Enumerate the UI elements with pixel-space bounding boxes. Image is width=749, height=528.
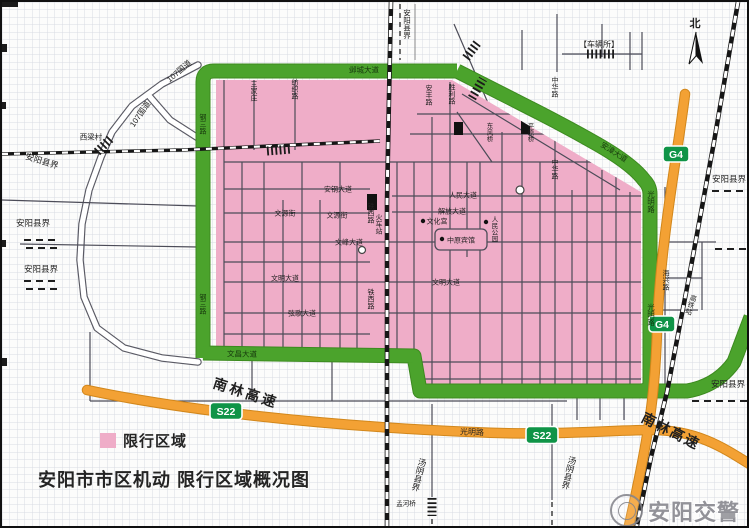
dongfeng-bridge-symbol bbox=[454, 122, 463, 135]
shengli-road-label: 胜利路 bbox=[449, 82, 456, 105]
g4-badge-top: G4 bbox=[663, 146, 689, 162]
zhonghua-road-1: 中华路 bbox=[552, 75, 559, 98]
zhonghua-road-2: 中华路 bbox=[552, 157, 559, 180]
legend-restricted-label: 限行区域 bbox=[123, 430, 187, 451]
police-badge-icon bbox=[610, 494, 643, 527]
anyang-boundary-e1: 安阳县界 bbox=[712, 174, 747, 184]
guangming-road-green-1: 光明路 bbox=[647, 189, 655, 214]
svg-text:G4: G4 bbox=[655, 319, 669, 331]
xiliang-village-label: 西梁村 bbox=[80, 132, 103, 142]
fangzhi-road-label: 纺织路 bbox=[292, 77, 299, 100]
traffic-police-watermark: 安阳交警 bbox=[610, 494, 740, 527]
xiange-avenue-label: 弦歌大道 bbox=[288, 308, 316, 317]
legend-restricted-swatch bbox=[100, 433, 116, 448]
jiefang-avenue-label: 解放大道 bbox=[438, 206, 466, 215]
legend: 限行区域 bbox=[100, 430, 187, 451]
tiexi-road-2: 铁西路 bbox=[368, 287, 375, 310]
s22-badge-right: S22 bbox=[526, 427, 558, 444]
map-title: 安阳市市区机动 限行区域概况图 bbox=[38, 466, 310, 492]
roundabout-center bbox=[359, 247, 366, 254]
roundabout-east bbox=[516, 186, 524, 194]
railway-station-label: 火车站 bbox=[376, 213, 383, 235]
renmin-park-dot bbox=[484, 220, 488, 224]
svg-text:S22: S22 bbox=[533, 430, 552, 442]
north-label: 北 bbox=[690, 16, 701, 30]
anfeng-road-label: 安丰路 bbox=[426, 83, 433, 106]
s22-badge-left: S22 bbox=[210, 403, 242, 420]
guangming-road-green-2: 光明路 bbox=[647, 302, 655, 327]
anyang-boundary-w1: 安阳县界 bbox=[16, 218, 51, 228]
pingyuan-bridge-label: 平原桥 bbox=[528, 122, 535, 143]
watermark-text: 安阳交警 bbox=[648, 495, 740, 527]
renmin-park-label: 人民公园 bbox=[492, 216, 499, 244]
anyang-boundary-top: 安阳县界 bbox=[403, 7, 411, 40]
vehicle-office-label: 【车辆所】 bbox=[579, 39, 619, 49]
culture-palace-label: 文化宫 bbox=[427, 216, 448, 225]
dongfeng-bridge-label: 东风桥 bbox=[487, 121, 494, 143]
anyang-boundary-se: 安阳县界 bbox=[711, 379, 746, 389]
wenchang-avenue-green-label: 文昌大道 bbox=[227, 348, 258, 359]
wenming-avenue-1: 文明大道 bbox=[271, 273, 299, 282]
gangsan-road-1: 钢三路 bbox=[200, 112, 207, 135]
anyang-restriction-map: G4G4S22S22 北【车辆所】安阳县界邺城大道安漳大道光明路光明路钢三路钢三… bbox=[0, 0, 749, 528]
renmin-avenue-label: 人民大道 bbox=[449, 190, 477, 199]
guangming-road-orange-label: 光明路 bbox=[460, 426, 484, 437]
wenming-avenue-2: 文明大道 bbox=[432, 277, 460, 286]
yecheng-avenue-label: 邺城大道 bbox=[349, 65, 379, 75]
svg-text:S22: S22 bbox=[217, 406, 236, 418]
gangsan-road-2: 钢三路 bbox=[200, 292, 207, 315]
haixing-road-label: 海兴路 bbox=[663, 268, 670, 291]
culture-palace-dot bbox=[421, 219, 425, 223]
angang-avenue-label: 安钢大道 bbox=[324, 184, 352, 193]
sanjiazhuang-label: 三家庄 bbox=[251, 80, 258, 102]
anyang-boundary-w2: 安阳县界 bbox=[24, 264, 59, 274]
zhongyuan-hotel-label: 中原宾馆 bbox=[447, 235, 475, 244]
svg-text:G4: G4 bbox=[669, 149, 683, 161]
police-badge-inner-icon bbox=[618, 502, 636, 520]
menghe-bridge-label: 孟河桥 bbox=[396, 498, 416, 507]
wenyuan-street-1: 文源街 bbox=[275, 208, 296, 217]
zhongyuan-hotel-dot bbox=[440, 237, 444, 241]
wenfeng-avenue-label: 文峰大道 bbox=[335, 237, 363, 246]
tiexi-road-1: 铁西路 bbox=[368, 201, 375, 224]
wenyuan-street-2: 文源街 bbox=[327, 210, 348, 219]
